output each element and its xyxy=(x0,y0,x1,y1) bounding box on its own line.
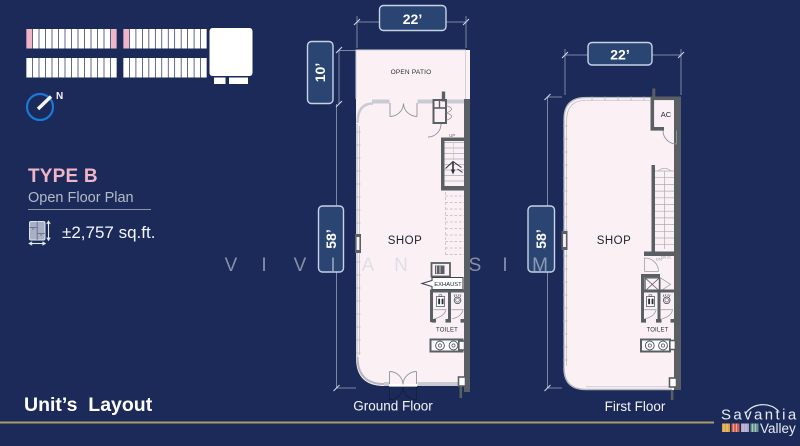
svg-text:V: V xyxy=(294,255,307,276)
svg-text:±2,757 sq.ft.: ±2,757 sq.ft. xyxy=(62,223,155,242)
svg-text:DN 21: DN 21 xyxy=(661,256,671,260)
svg-text:I: I xyxy=(502,255,507,276)
svg-text:58’: 58’ xyxy=(323,229,339,248)
svg-text:Ground Floor: Ground Floor xyxy=(353,399,433,414)
svg-text:58’: 58’ xyxy=(533,229,549,248)
svg-text:OPEN PATIO: OPEN PATIO xyxy=(391,69,432,76)
svg-text:I: I xyxy=(261,255,266,276)
svg-text:N: N xyxy=(56,91,63,102)
svg-text:I: I xyxy=(330,255,335,276)
svg-text:M: M xyxy=(532,255,548,276)
svg-text:S: S xyxy=(469,255,482,276)
svg-text:Unit’s Layout: Unit’s Layout xyxy=(24,394,153,416)
svg-text:10’: 10’ xyxy=(312,63,328,82)
svg-text:EXHAUST: EXHAUST xyxy=(434,282,462,288)
svg-text:22’: 22’ xyxy=(403,11,422,27)
svg-text:22’: 22’ xyxy=(610,47,629,63)
svg-text:A: A xyxy=(362,255,375,276)
svg-text:SHOP: SHOP xyxy=(597,235,632,247)
svg-text:First Floor: First Floor xyxy=(605,399,666,414)
svg-text:TOILET: TOILET xyxy=(436,328,458,334)
svg-text:TOILET: TOILET xyxy=(646,328,668,334)
svg-text:V: V xyxy=(225,255,238,276)
svg-text:SHOP: SHOP xyxy=(388,235,423,247)
svg-text:Valley: Valley xyxy=(760,421,796,436)
svg-text:TYPE B: TYPE B xyxy=(28,166,98,187)
svg-text:UP: UP xyxy=(449,133,455,138)
svg-text:N: N xyxy=(394,255,408,276)
svg-text:AC: AC xyxy=(661,110,672,119)
svg-text:Open Floor Plan: Open Floor Plan xyxy=(28,190,134,206)
